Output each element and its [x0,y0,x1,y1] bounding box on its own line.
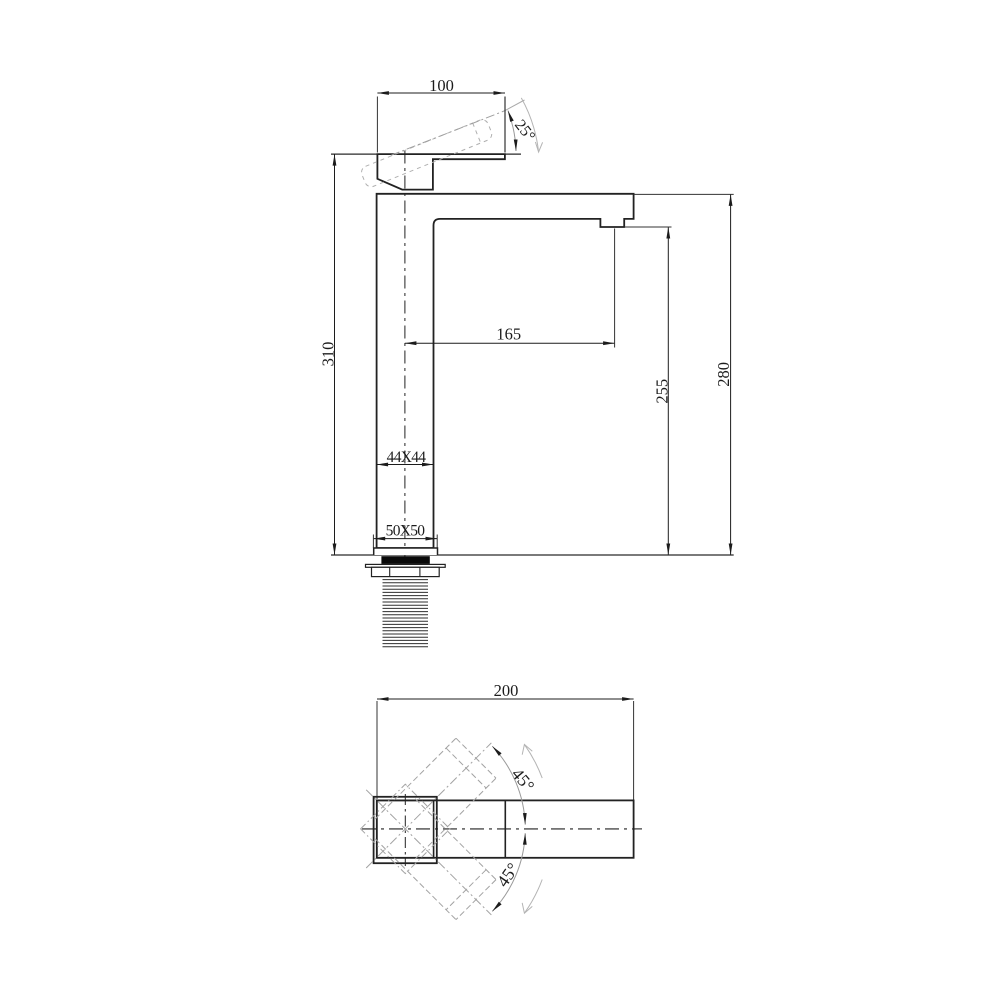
svg-text:44X44: 44X44 [387,449,427,466]
svg-text:310: 310 [319,342,338,367]
svg-text:100: 100 [429,76,454,95]
svg-text:200: 200 [494,681,519,700]
svg-text:165: 165 [496,325,521,344]
svg-text:255: 255 [653,379,672,404]
svg-text:280: 280 [714,362,733,387]
svg-text:50X50: 50X50 [386,523,426,540]
